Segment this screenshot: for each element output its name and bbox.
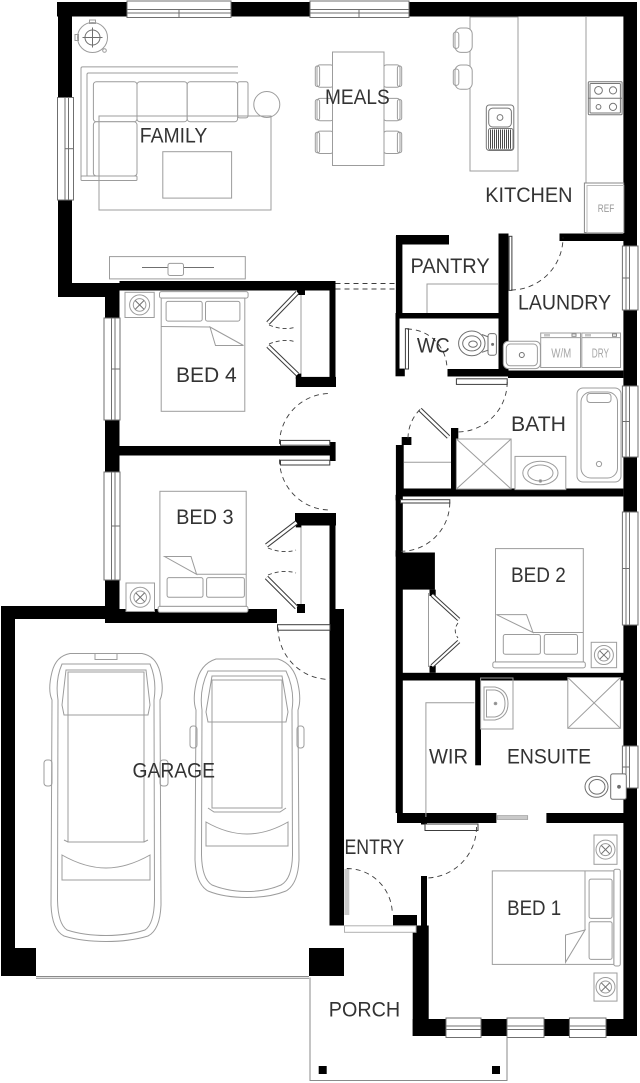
svg-text:BED 1: BED 1 (507, 895, 561, 920)
svg-text:WIR: WIR (429, 743, 468, 768)
svg-text:PANTRY: PANTRY (411, 253, 490, 278)
svg-text:KITCHEN: KITCHEN (485, 182, 572, 207)
svg-text:REF: REF (598, 203, 615, 215)
svg-text:ENSUITE: ENSUITE (507, 743, 591, 768)
svg-text:DRY: DRY (592, 346, 609, 361)
svg-text:ENTRY: ENTRY (345, 834, 405, 859)
svg-text:W/M: W/M (551, 346, 571, 361)
svg-text:FAMILY: FAMILY (140, 123, 208, 148)
svg-text:BED 3: BED 3 (176, 504, 234, 529)
svg-text:LAUNDRY: LAUNDRY (518, 290, 611, 315)
svg-text:GARAGE: GARAGE (133, 758, 216, 783)
svg-text:BED 2: BED 2 (511, 562, 566, 587)
svg-text:BATH: BATH (511, 411, 566, 436)
svg-text:MEALS: MEALS (325, 84, 390, 109)
svg-text:PORCH: PORCH (329, 996, 400, 1021)
svg-text:BED 4: BED 4 (176, 362, 237, 387)
svg-text:WC: WC (417, 333, 450, 358)
